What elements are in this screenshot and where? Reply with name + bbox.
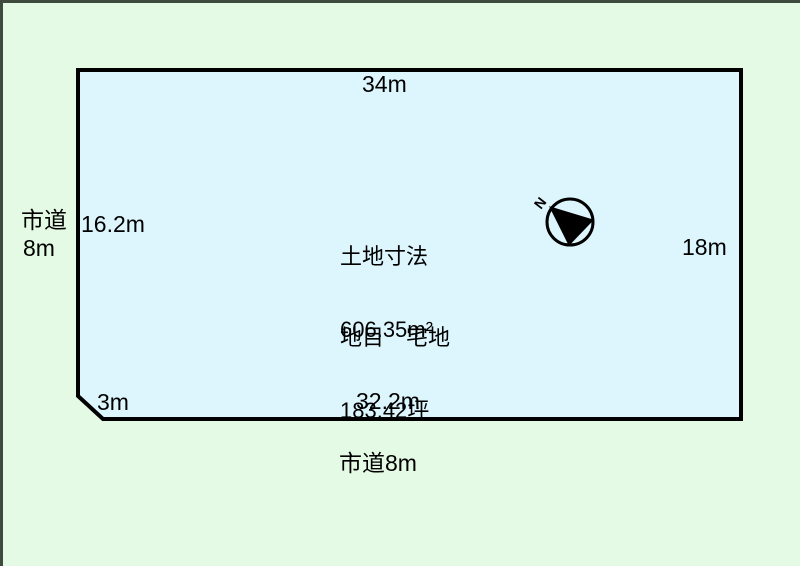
dimension-right: 18m [682,234,727,261]
land-plot-diagram: N 34m 市道 8m 16.2m 18m 3m 32.2m 市道8m 土地寸法… [0,0,800,566]
parcel-info-area: 606.35m² 183.42坪 [340,262,433,478]
dimension-left: 16.2m [81,211,145,238]
road-label-left-line2: 8m [23,235,55,262]
dimension-top: 34m [362,71,407,98]
frame-edge-left [0,0,3,566]
dimension-chamfer: 3m [97,389,129,416]
road-label-left-line1: 市道 [21,207,67,234]
parcel-area-m2: 606.35m² [340,316,433,343]
parcel-area-tsubo: 183.42坪 [340,397,433,424]
frame-edge-top [0,0,800,3]
